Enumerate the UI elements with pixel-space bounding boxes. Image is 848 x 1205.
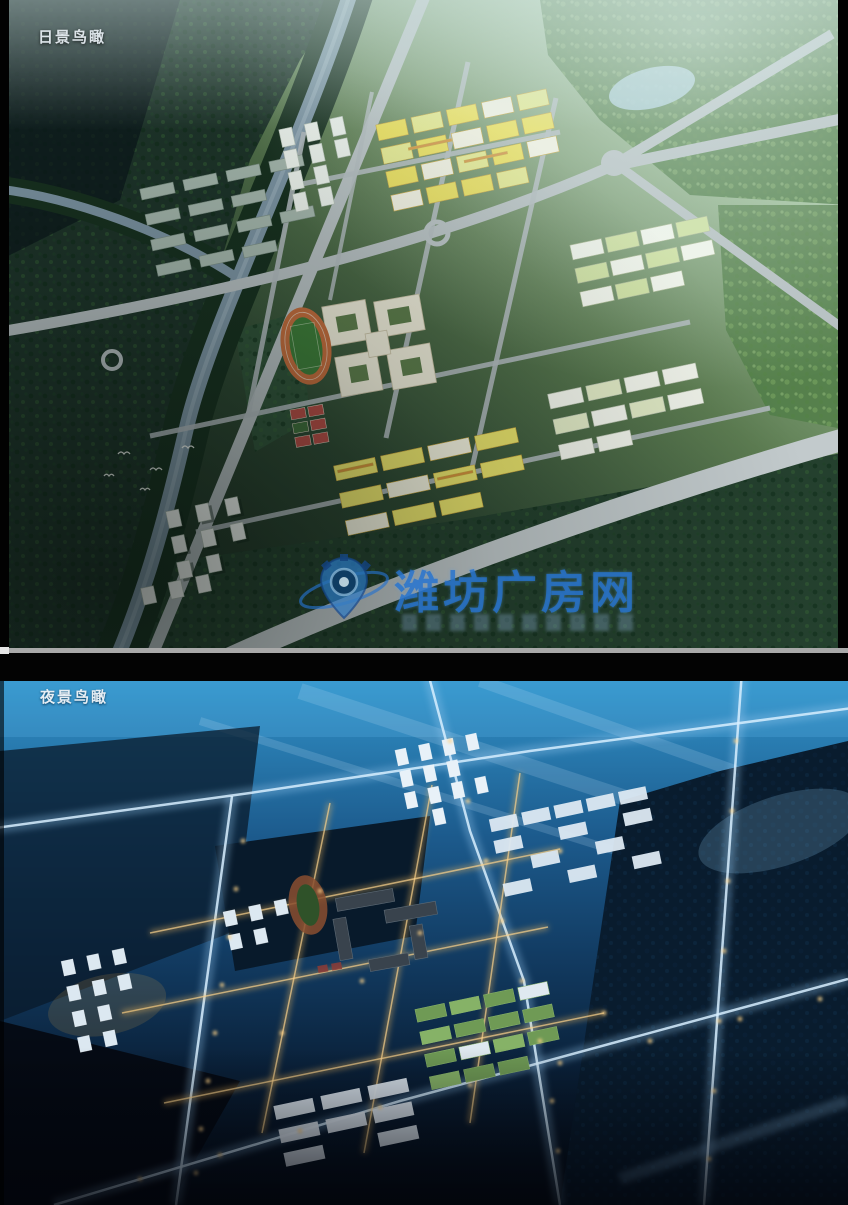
- day-right-black-bar: [838, 0, 848, 648]
- panel-divider-notch: [0, 647, 9, 654]
- watermark-logo-icon: [298, 552, 394, 640]
- watermark-site-name: 潍坊广房网: [394, 556, 639, 621]
- watermark-tagline-blur: [402, 614, 638, 631]
- panel-divider-band: [0, 653, 848, 681]
- night-aerial-scene: [0, 681, 848, 1205]
- night-view-panel: 夜景鸟瞰: [0, 681, 848, 1205]
- day-view-panel: 日景鸟瞰 潍坊广房网: [0, 0, 848, 648]
- day-view-label: 日景鸟瞰: [38, 26, 106, 47]
- night-view-label: 夜景鸟瞰: [40, 686, 108, 707]
- day-left-black-bar: [0, 0, 9, 648]
- two-panel-masterplan-rendering: 日景鸟瞰 潍坊广房网: [0, 0, 848, 1205]
- watermark: 潍坊广房网: [298, 550, 668, 646]
